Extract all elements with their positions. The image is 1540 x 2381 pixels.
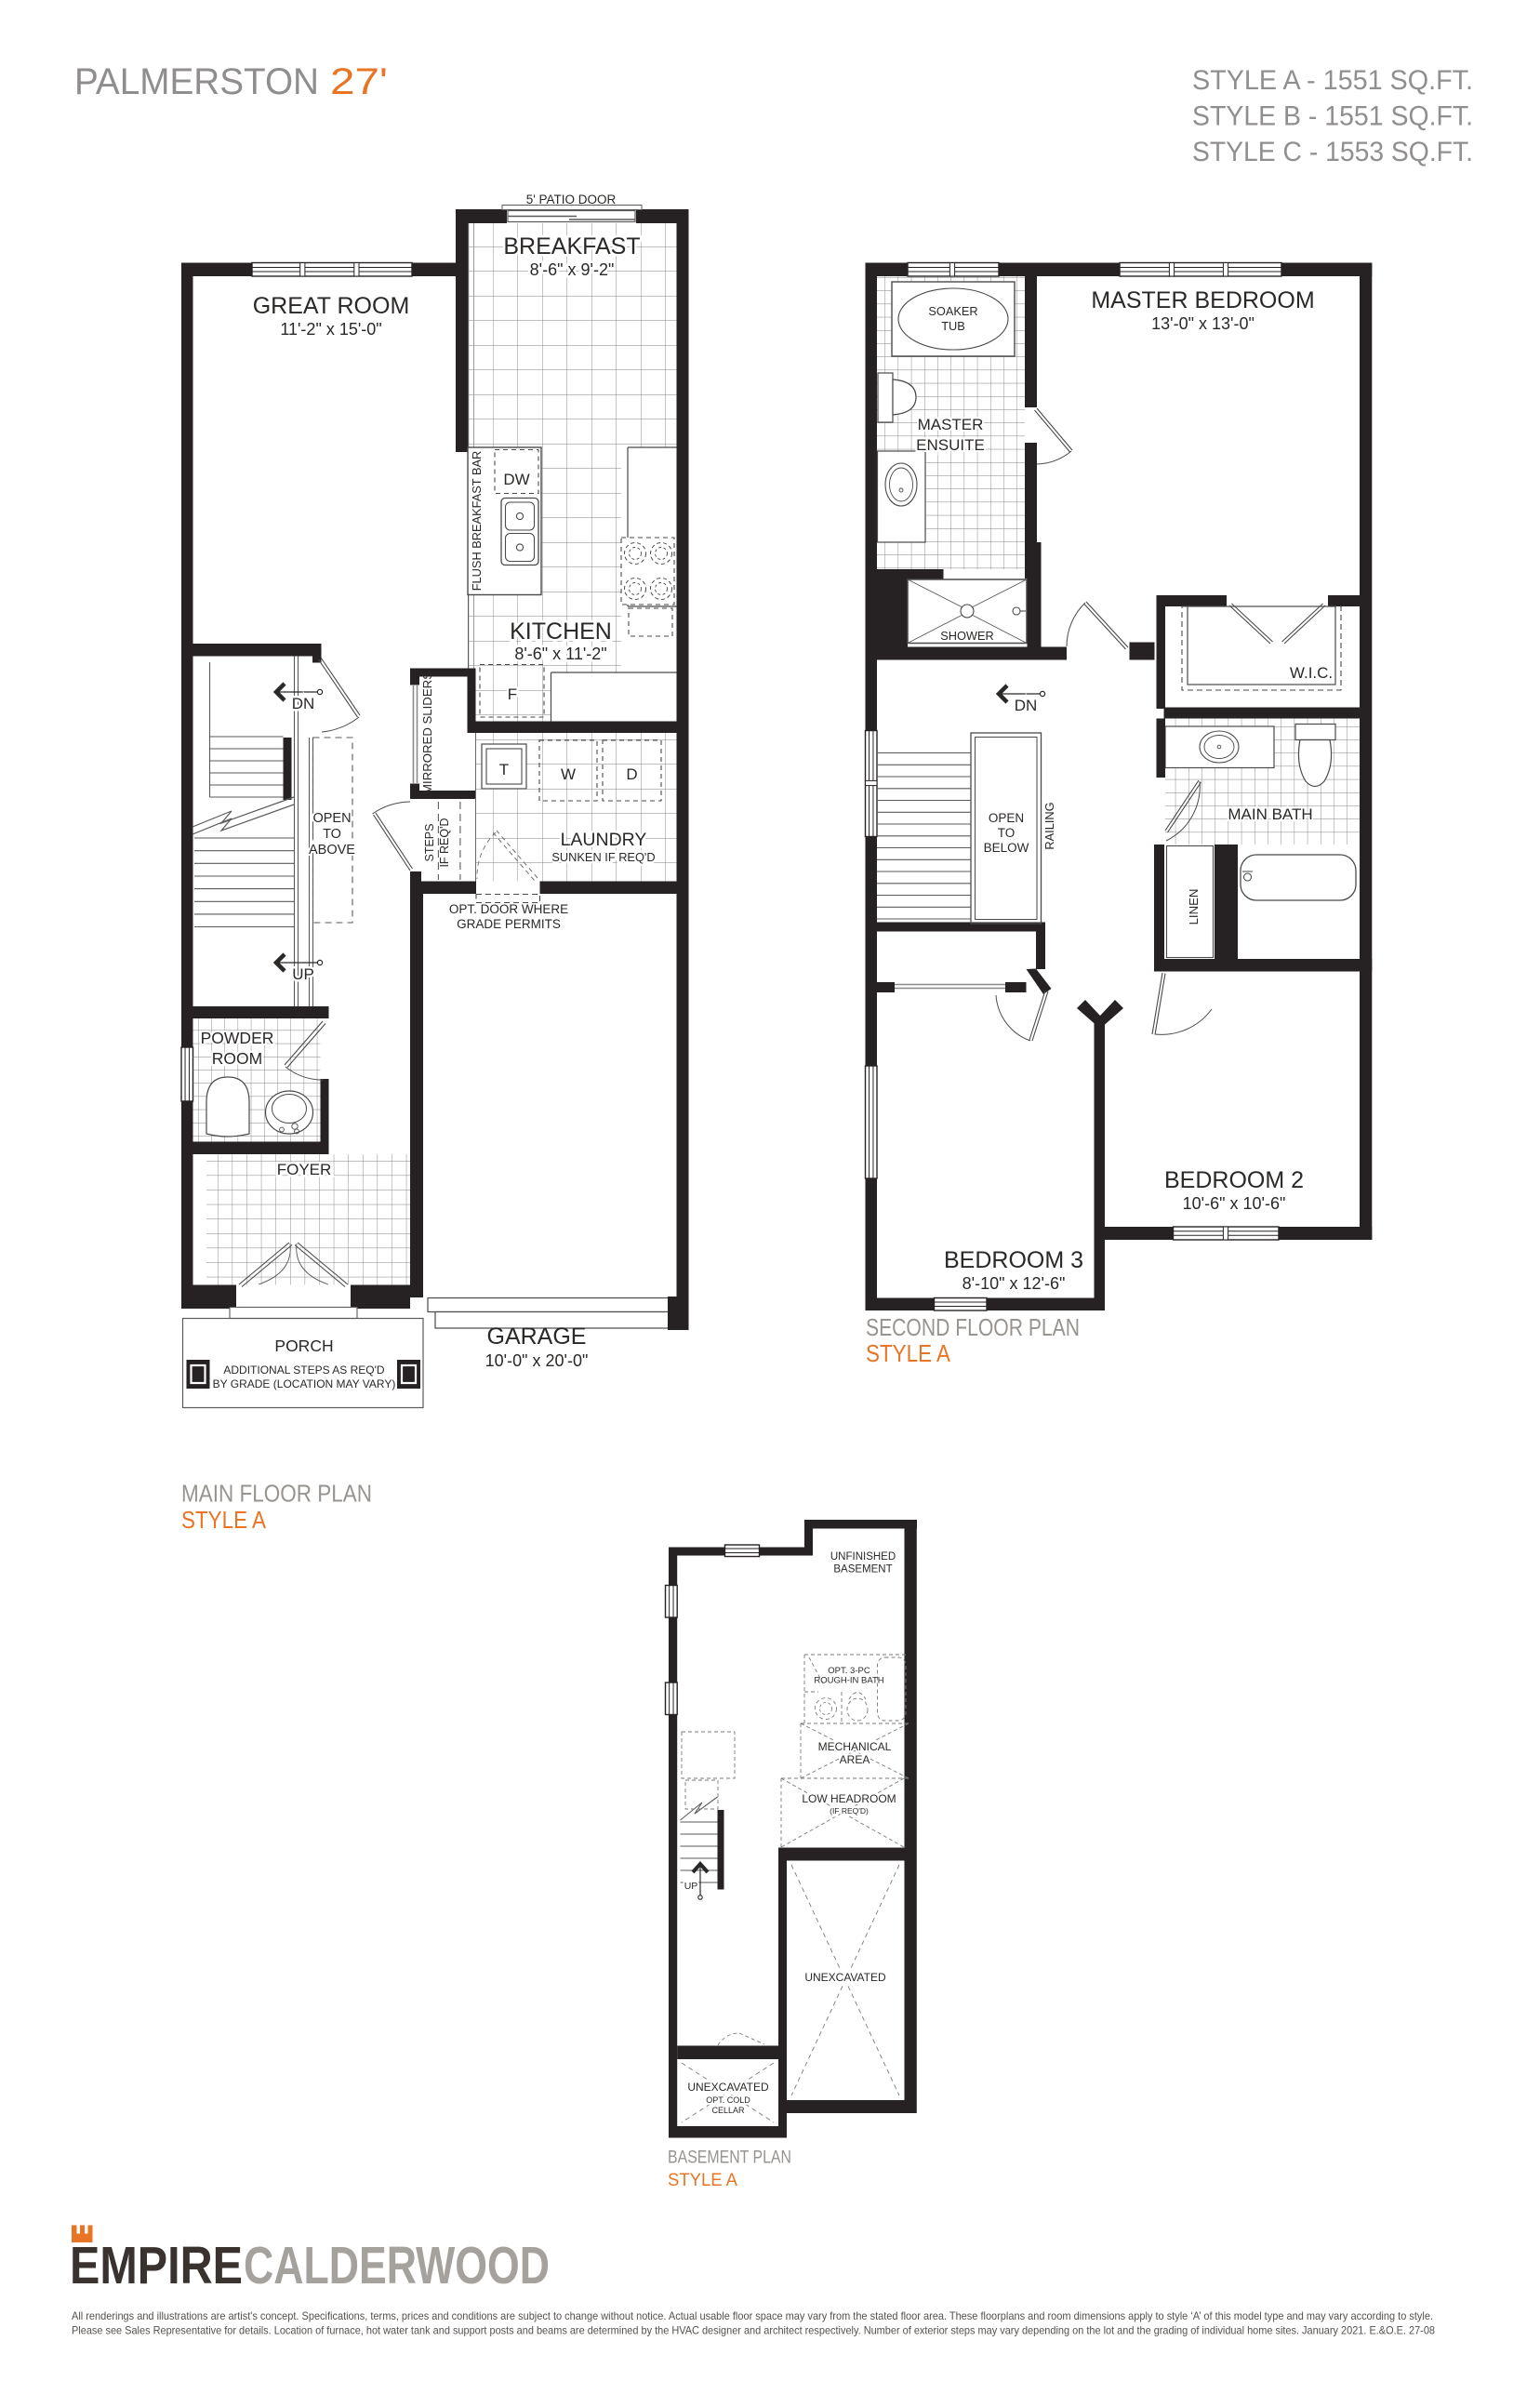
svg-text:FOYER: FOYER (277, 1161, 332, 1178)
svg-text:UNFINISHED: UNFINISHED (830, 1551, 896, 1563)
svg-text:OPEN: OPEN (989, 811, 1024, 825)
svg-text:GREAT ROOM: GREAT ROOM (253, 293, 410, 319)
svg-text:27': 27' (330, 61, 388, 102)
svg-text:D: D (626, 765, 637, 783)
svg-text:PORCH: PORCH (274, 1337, 333, 1355)
svg-text:STYLE C - 1553 SQ.FT.: STYLE C - 1553 SQ.FT. (1192, 137, 1473, 167)
svg-text:10'-0" x 20'-0": 10'-0" x 20'-0" (485, 1351, 589, 1370)
svg-text:UP: UP (292, 965, 314, 983)
svg-text:DN: DN (1015, 697, 1038, 714)
svg-text:UNEXCAVATED: UNEXCAVATED (804, 1971, 886, 1984)
svg-text:SUNKEN IF REQ'D: SUNKEN IF REQ'D (551, 850, 655, 864)
svg-text:T: T (499, 761, 509, 778)
svg-text:BEDROOM 2: BEDROOM 2 (1164, 1167, 1304, 1193)
svg-text:GRADE PERMITS: GRADE PERMITS (457, 917, 561, 931)
svg-text:PALMERSTON: PALMERSTON (74, 61, 319, 102)
svg-text:8'-6" x 11'-2": 8'-6" x 11'-2" (514, 645, 606, 663)
svg-text:BEDROOM 3: BEDROOM 3 (944, 1247, 1083, 1273)
svg-text:UNEXCAVATED: UNEXCAVATED (687, 2081, 769, 2094)
svg-text:BASEMENT PLAN: BASEMENT PLAN (668, 2148, 791, 2168)
svg-text:BASEMENT: BASEMENT (833, 1564, 892, 1576)
svg-text:BELOW: BELOW (984, 841, 1029, 855)
svg-text:5' PATIO DOOR: 5' PATIO DOOR (526, 193, 617, 206)
svg-text:SECOND FLOOR PLAN: SECOND FLOOR PLAN (866, 1315, 1080, 1341)
svg-text:GARAGE: GARAGE (487, 1324, 587, 1350)
svg-text:STYLE A: STYLE A (668, 2170, 737, 2190)
svg-text:UP: UP (684, 1881, 698, 1892)
svg-text:LAUNDRY: LAUNDRY (561, 830, 647, 850)
svg-text:All renderings and illustratio: All renderings and illustrations are art… (72, 2310, 1433, 2322)
svg-text:OPT. 3-PC: OPT. 3-PC (828, 1666, 870, 1676)
svg-text:11'-2" x 15'-0": 11'-2" x 15'-0" (280, 320, 381, 339)
svg-text:TO: TO (323, 827, 341, 842)
svg-text:13'-0" x 13'-0": 13'-0" x 13'-0" (1151, 314, 1255, 333)
svg-text:MAIN FLOOR PLAN: MAIN FLOOR PLAN (181, 1482, 372, 1508)
svg-text:OPEN: OPEN (312, 811, 351, 826)
svg-text:POWDER: POWDER (201, 1029, 274, 1047)
svg-text:DW: DW (503, 471, 529, 488)
svg-text:MECHANICAL: MECHANICAL (818, 1740, 892, 1753)
svg-text:MAIN BATH: MAIN BATH (1228, 805, 1312, 823)
svg-text:TUB: TUB (941, 319, 965, 333)
svg-text:10'-6" x 10'-6": 10'-6" x 10'-6" (1183, 1194, 1286, 1213)
svg-text:W: W (561, 765, 576, 783)
svg-text:ROOM: ROOM (212, 1049, 262, 1068)
svg-text:Please see Sales Representativ: Please see Sales Representative for deta… (72, 2325, 1435, 2337)
svg-text:OPT. COLD: OPT. COLD (706, 2095, 750, 2105)
svg-text:W.I.C.: W.I.C. (1290, 664, 1333, 682)
svg-text:EMPIRE: EMPIRE (70, 2236, 243, 2295)
svg-text:FLUSH BREAKFAST BAR: FLUSH BREAKFAST BAR (470, 451, 484, 592)
svg-text:KITCHEN: KITCHEN (510, 619, 612, 645)
svg-text:BY GRADE (LOCATION MAY VARY): BY GRADE (LOCATION MAY VARY) (213, 1377, 396, 1390)
svg-text:MASTER: MASTER (918, 416, 984, 433)
svg-text:BREAKFAST: BREAKFAST (503, 233, 640, 259)
svg-text:STYLE A: STYLE A (866, 1341, 950, 1367)
svg-text:STYLE B - 1551 SQ.FT.: STYLE B - 1551 SQ.FT. (1192, 101, 1473, 132)
svg-text:SOAKER: SOAKER (928, 304, 977, 318)
svg-text:RAILING: RAILING (1042, 802, 1056, 849)
svg-text:DN: DN (292, 695, 315, 712)
svg-text:LOW HEADROOM: LOW HEADROOM (802, 1792, 896, 1805)
svg-text:TO: TO (998, 826, 1016, 840)
svg-text:8'-10" x 12'-6": 8'-10" x 12'-6" (962, 1274, 1066, 1293)
svg-text:CELLAR: CELLAR (711, 2106, 745, 2115)
svg-text:STYLE A: STYLE A (181, 1508, 266, 1534)
svg-text:SHOWER: SHOWER (940, 629, 994, 643)
svg-text:F: F (508, 685, 517, 703)
svg-text:ENSUITE: ENSUITE (916, 436, 985, 454)
svg-text:MASTER BEDROOM: MASTER BEDROOM (1091, 287, 1314, 313)
svg-text:MIRRORED SLIDERS: MIRRORED SLIDERS (420, 672, 434, 794)
svg-text:ROUGH-IN BATH: ROUGH-IN BATH (814, 1676, 883, 1686)
svg-text:STEPS: STEPS (423, 824, 436, 862)
svg-text:8'-6" x 9'-2": 8'-6" x 9'-2" (530, 260, 615, 279)
svg-text:STYLE A - 1551 SQ.FT.: STYLE A - 1551 SQ.FT. (1192, 65, 1473, 96)
svg-text:ADDITIONAL STEPS AS REQ'D: ADDITIONAL STEPS AS REQ'D (223, 1363, 385, 1377)
svg-text:AREA: AREA (840, 1753, 870, 1766)
svg-text:CALDERWOOD: CALDERWOOD (244, 2236, 550, 2295)
svg-text:ABOVE: ABOVE (309, 843, 355, 858)
svg-text:LINEN: LINEN (1187, 889, 1201, 925)
svg-text:(IF REQ'D): (IF REQ'D) (830, 1806, 869, 1816)
svg-text:OPT. DOOR WHERE: OPT. DOOR WHERE (449, 902, 568, 916)
svg-text:IF REQ'D: IF REQ'D (438, 818, 451, 867)
